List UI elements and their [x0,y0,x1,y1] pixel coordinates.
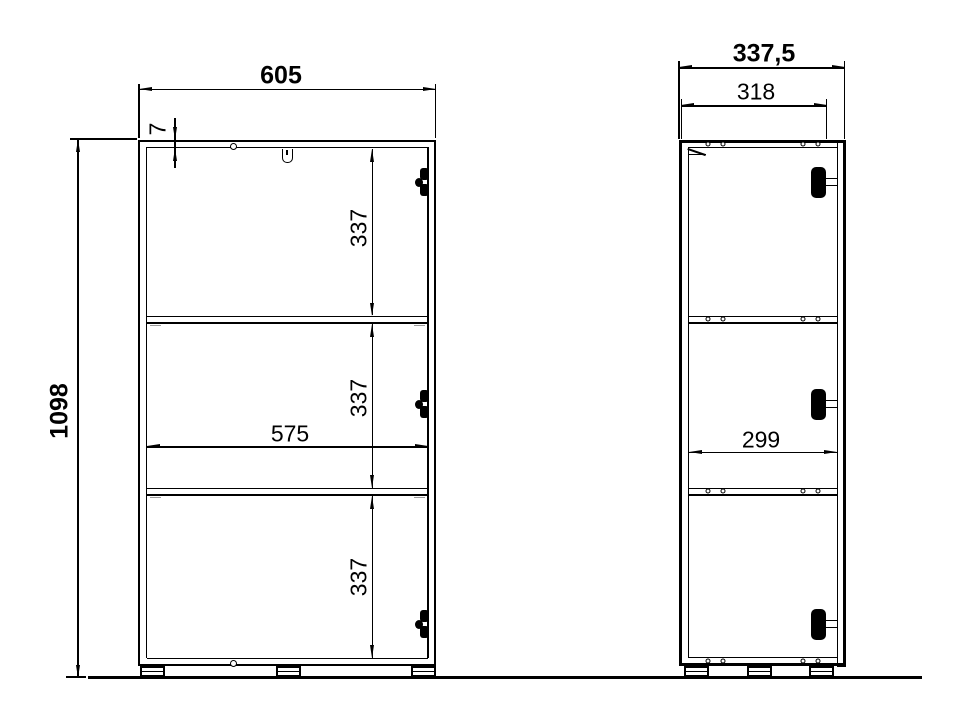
dim-label-compartment-3: 337 [348,558,371,596]
arrowhead [147,444,160,448]
arrowhead [824,450,837,454]
front-bottom-panel-inner-edge [147,658,428,660]
front-shelf-2-top-edge [147,488,428,490]
hinge-icon [811,167,826,198]
screw-hole-icon [816,317,821,322]
side-top-edge [679,140,846,143]
front-cabinet-outline [138,140,436,666]
dim-label-inner-width: 575 [271,423,309,446]
technical-drawing-canvas: 605 1098 7 337 337 337 575 [0,0,959,719]
dim-label-overall-depth: 337,5 [733,42,796,67]
front-shelf-2-bottom-edge [147,494,428,496]
extension-line [435,84,437,138]
arrowhead [689,450,702,454]
ground-line [88,676,922,679]
side-shelf-1-top-edge [688,316,837,318]
hinge-icon [415,610,430,639]
dim-line-compartment-1 [372,149,374,315]
dim-label-overall-width: 605 [260,64,302,89]
arrowhead [370,303,374,316]
dim-line-compartment-2 [372,324,374,488]
arrowhead [76,665,80,678]
shelf-pin-mark [414,497,425,498]
arrowhead [370,645,374,658]
arrowhead [370,149,374,162]
shelf-pin-mark [150,325,161,326]
screw-hole-icon [230,660,237,667]
hinge-icon [415,168,430,197]
arrowhead [173,148,177,161]
arrowhead [423,87,436,91]
hinge-icon [415,390,430,419]
arrowhead [139,87,152,91]
screw-hole-icon [721,142,726,147]
wall-hanger-bracket-icon [282,149,293,163]
hinge-icon [811,609,826,640]
front-shelf-1-top-edge [147,316,428,318]
dim-line-overall-height [77,139,79,678]
bracket-pin-icon [286,150,288,155]
extension-line [678,61,680,139]
side-shelf-2-bottom-edge [688,494,837,496]
dim-label-inner-depth: 299 [742,429,780,452]
side-back-panel-inner-edge [688,147,690,658]
side-bottom-panel-inner-edge [688,657,837,659]
dim-label-top-depth: 318 [737,81,775,104]
screw-hole-icon [721,317,726,322]
screw-hole-icon [816,658,821,663]
screw-hole-icon [721,489,726,494]
arrowhead [370,496,374,509]
arrowhead [415,444,428,448]
side-back-panel-outer-edge [679,140,682,666]
screw-hole-icon [801,317,806,322]
dim-line-compartment-3 [372,496,374,658]
arrowhead [173,127,177,140]
arrowhead [814,103,827,107]
screw-hole-icon [230,143,237,150]
arrowhead [370,475,374,488]
dim-line-top-thickness [174,118,176,168]
screw-hole-icon [706,317,711,322]
screw-hole-icon [801,142,806,147]
side-door-front-edge [843,140,846,667]
screw-hole-icon [801,658,806,663]
screw-hole-icon [706,658,711,663]
shelf-pin-mark [150,497,161,498]
front-shelf-1-bottom-edge [147,322,428,324]
screw-hole-icon [721,658,726,663]
side-top-panel-inner-edge [688,147,837,149]
arrowhead [681,103,694,107]
dim-label-compartment-2: 337 [348,379,371,417]
extension-line [70,138,137,140]
screw-hole-icon [816,489,821,494]
screw-hole-icon [706,142,711,147]
extension-line [844,61,846,139]
screw-hole-icon [816,142,821,147]
arrowhead [679,65,692,69]
side-shelf-2-top-edge [688,488,837,490]
screw-hole-icon [801,489,806,494]
front-top-panel-inner-edge [147,147,428,149]
front-left-panel-inner-edge [146,147,148,658]
dim-line-top-depth [681,105,827,107]
side-shelf-1-bottom-edge [688,322,837,324]
screw-hole-icon [706,489,711,494]
hinge-icon [811,389,826,420]
arrowhead [370,324,374,337]
dim-label-top-thickness: 7 [147,123,170,136]
dim-label-compartment-1: 337 [348,209,371,247]
extension-line [138,84,140,138]
shelf-pin-mark [414,325,425,326]
wall-bracket-base [688,154,706,156]
arrowhead [832,65,845,69]
arrowhead [76,139,80,152]
side-door-bottom-edge [837,666,846,668]
dim-label-overall-height: 1098 [48,383,73,439]
